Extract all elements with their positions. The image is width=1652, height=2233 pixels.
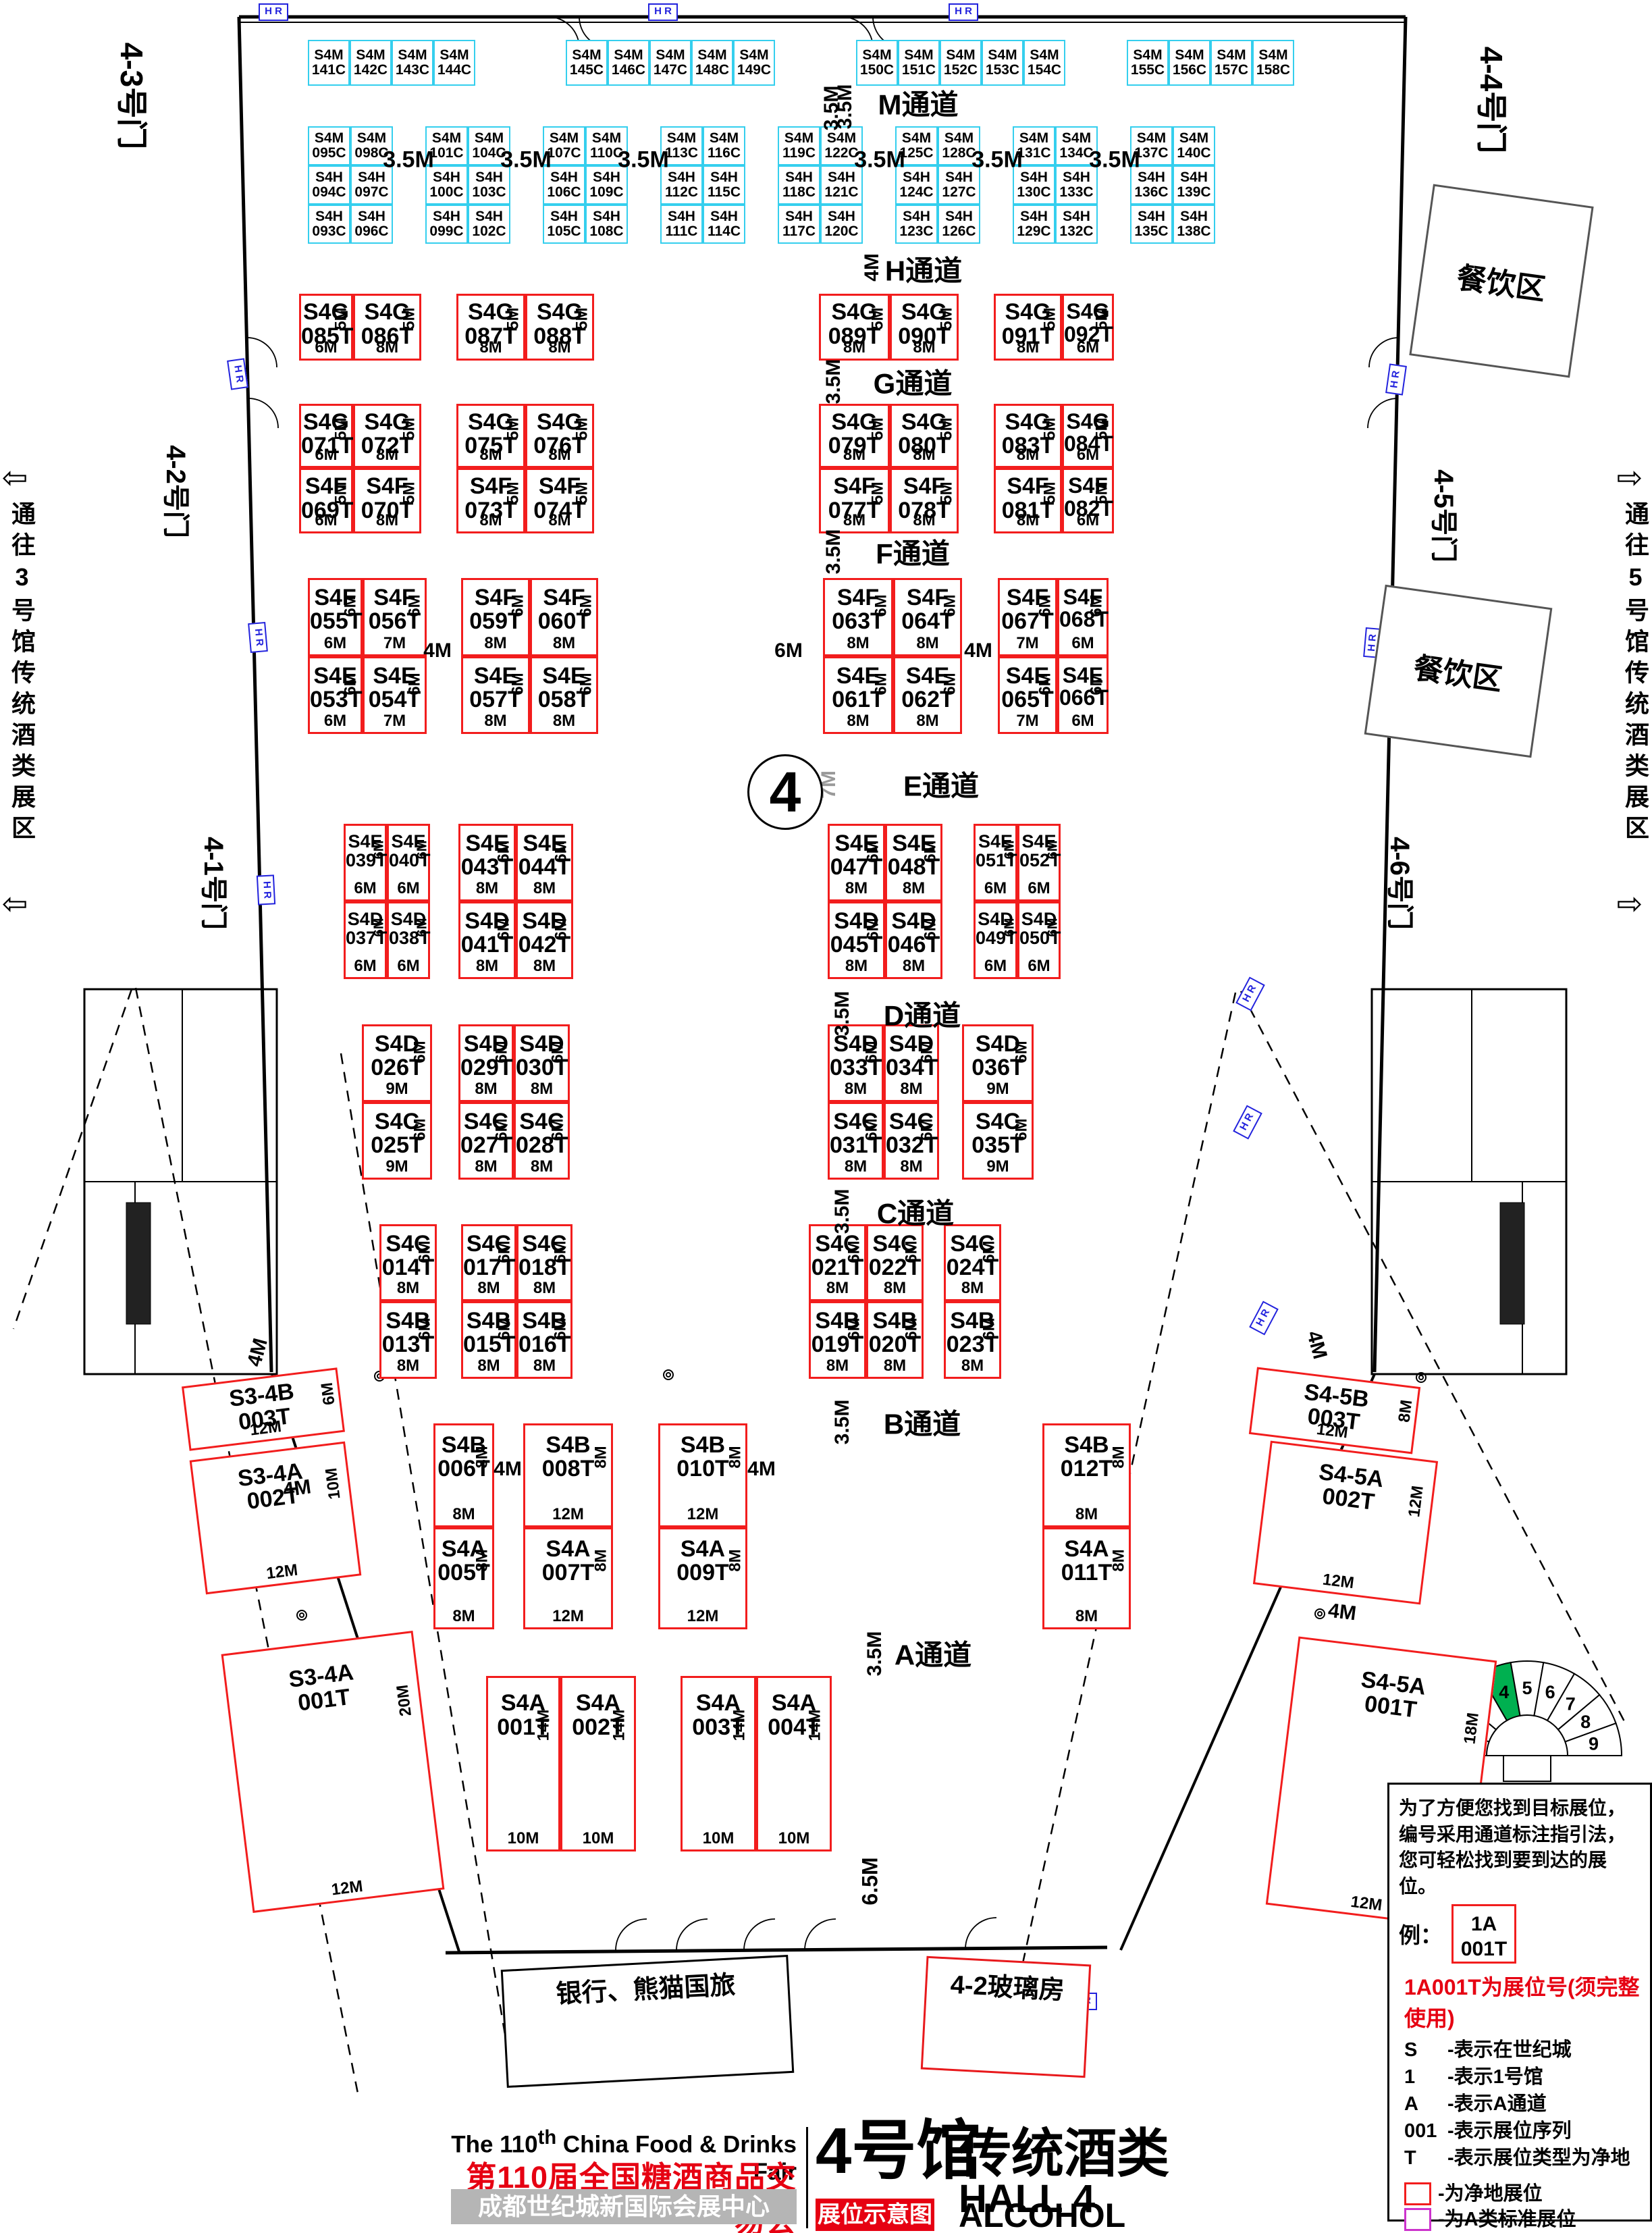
legend-example-label: 例： [1399, 1918, 1442, 1949]
fan-hall-number: 1 [1456, 1734, 1466, 1754]
legend-sample-booth: 1A 001T [1451, 1904, 1516, 1964]
fan-hall-number: 5 [1522, 1678, 1532, 1698]
legend-def: 1-表示1号馆 [1404, 2064, 1641, 2091]
class-swatch [1404, 2208, 1431, 2231]
fan-hall-number: 4 [1499, 1682, 1509, 1702]
legend-booth-classes: -为净地展位-为A类标准展位-为B类标准展位-为C类标准展位-为D类标准展位 [1399, 2181, 1641, 2233]
fan-hall-number: 7 [1566, 1693, 1576, 1714]
legend-class: -为净地展位 [1404, 2181, 1641, 2207]
legend-def: A-表示A通道 [1404, 2091, 1641, 2118]
fan-hall-number: 6 [1545, 1682, 1555, 1702]
corridor-right-label: 通往5号馆传统酒类展区 [1618, 501, 1652, 846]
legend-box: 为了方便您找到目标展位，编号采用通道标注指引法，您可轻松找到要到达的展位。 例：… [1387, 1783, 1652, 2222]
hall-number-circle: 4 [747, 754, 823, 830]
corridor-left-label: 通往3号馆传统酒类展区 [4, 501, 39, 846]
legend-class: -为A类标准展位 [1404, 2207, 1641, 2232]
legend-intro: 为了方便您找到目标展位，编号采用通道标注指引法，您可轻松找到要到达的展位。 [1399, 1795, 1641, 1900]
legend-definitions: S-表示在世纪城1-表示1号馆A-表示A通道001-表示展位序列T-表示展位类型… [1399, 2037, 1641, 2172]
hall-number: 4 [770, 760, 801, 825]
fan-hall-number: 9 [1589, 1734, 1599, 1754]
legend-headline: 1A001T为展位号(须完整使用) [1404, 1970, 1641, 2032]
class-swatch [1404, 2182, 1431, 2205]
hall4-floorplan: 123456789 S4M 141CS4M 142CS4M 143CS4M 14… [0, 0, 1652, 2233]
fan-hall-number: 8 [1580, 1712, 1591, 1732]
fan-hall-number: 3 [1478, 1693, 1489, 1714]
sample-line1: 1A [1454, 1912, 1514, 1937]
sample-line2: 001T [1454, 1937, 1514, 1962]
legend-def: S-表示在世纪城 [1404, 2037, 1641, 2064]
legend-def: T-表示展位类型为净地 [1404, 2145, 1641, 2172]
legend-def: 001-表示展位序列 [1404, 2118, 1641, 2145]
fan-hall-number: 2 [1464, 1712, 1474, 1732]
